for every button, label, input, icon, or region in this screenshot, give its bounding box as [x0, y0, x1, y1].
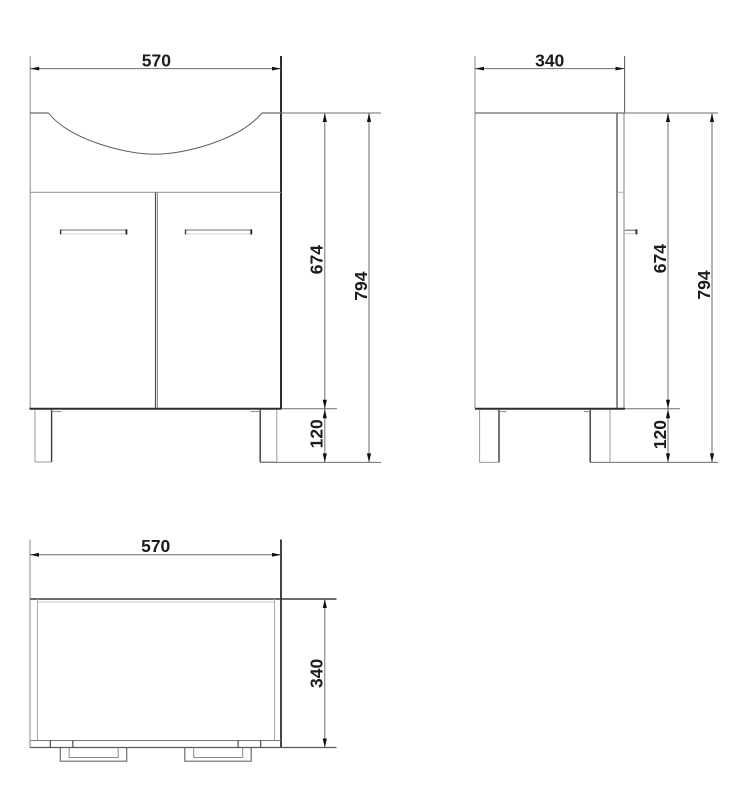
svg-text:794: 794 — [351, 271, 371, 300]
svg-text:570: 570 — [142, 51, 171, 71]
svg-text:674: 674 — [307, 245, 327, 274]
svg-text:120: 120 — [307, 419, 327, 448]
svg-text:674: 674 — [650, 244, 670, 273]
svg-text:340: 340 — [306, 659, 326, 688]
svg-text:120: 120 — [650, 420, 670, 449]
svg-text:340: 340 — [535, 51, 564, 71]
svg-text:794: 794 — [694, 270, 714, 299]
svg-text:570: 570 — [141, 536, 170, 556]
